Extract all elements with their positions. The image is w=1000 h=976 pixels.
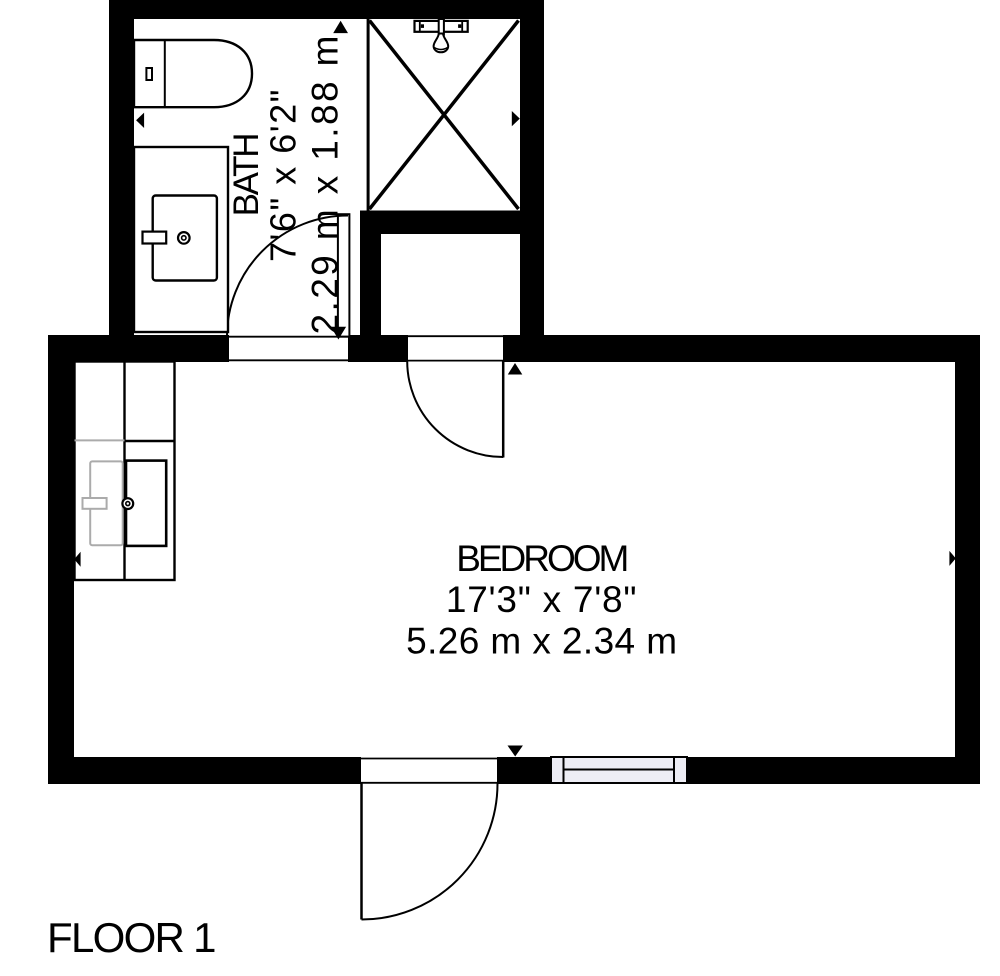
svg-text:17'3" x 7'8": 17'3" x 7'8" <box>446 579 637 620</box>
svg-text:FLOOR 1: FLOOR 1 <box>47 914 215 961</box>
svg-text:BEDROOM: BEDROOM <box>456 538 626 579</box>
svg-text:2.29 m x 1.88 m: 2.29 m x 1.88 m <box>305 33 346 334</box>
svg-text:7'6" x 6'2": 7'6" x 6'2" <box>263 88 304 262</box>
svg-text:5.26 m x 2.34 m: 5.26 m x 2.34 m <box>406 621 677 662</box>
svg-text:BATH: BATH <box>227 135 266 217</box>
